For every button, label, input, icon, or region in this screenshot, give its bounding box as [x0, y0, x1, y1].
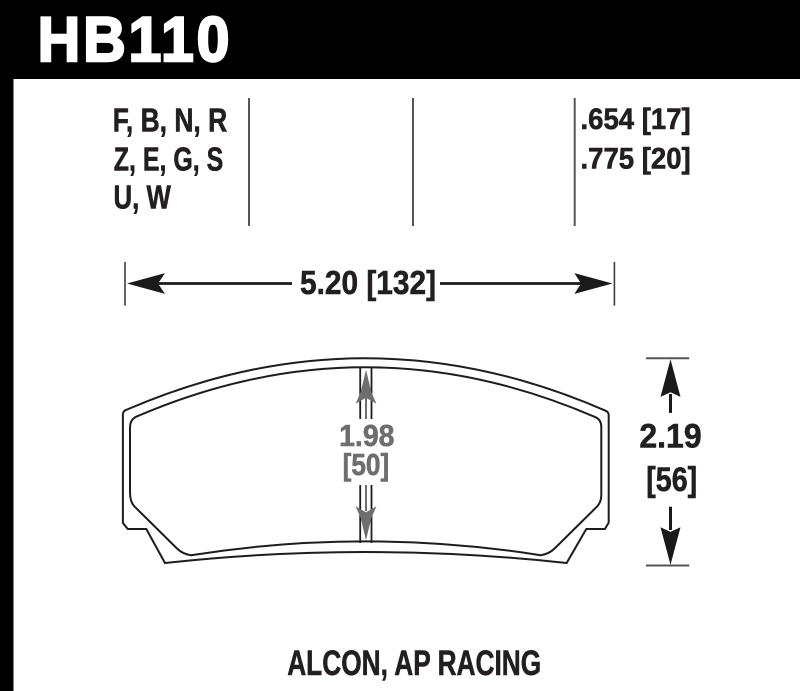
- svg-text:.775 [20]: .775 [20]: [581, 142, 691, 175]
- svg-text:5.20 [132]: 5.20 [132]: [300, 263, 436, 301]
- svg-text:U, W: U, W: [114, 179, 172, 216]
- svg-text:HB110: HB110: [38, 3, 233, 74]
- svg-text:[56]: [56]: [646, 461, 697, 499]
- svg-text:[50]: [50]: [343, 448, 390, 483]
- svg-text:.654 [17]: .654 [17]: [581, 103, 691, 136]
- svg-text:Z, E, G, S: Z, E, G, S: [114, 141, 223, 178]
- svg-text:2.19: 2.19: [639, 417, 701, 455]
- svg-text:ALCON, AP RACING: ALCON, AP RACING: [287, 643, 541, 683]
- svg-text:F, B, N, R: F, B, N, R: [113, 103, 228, 140]
